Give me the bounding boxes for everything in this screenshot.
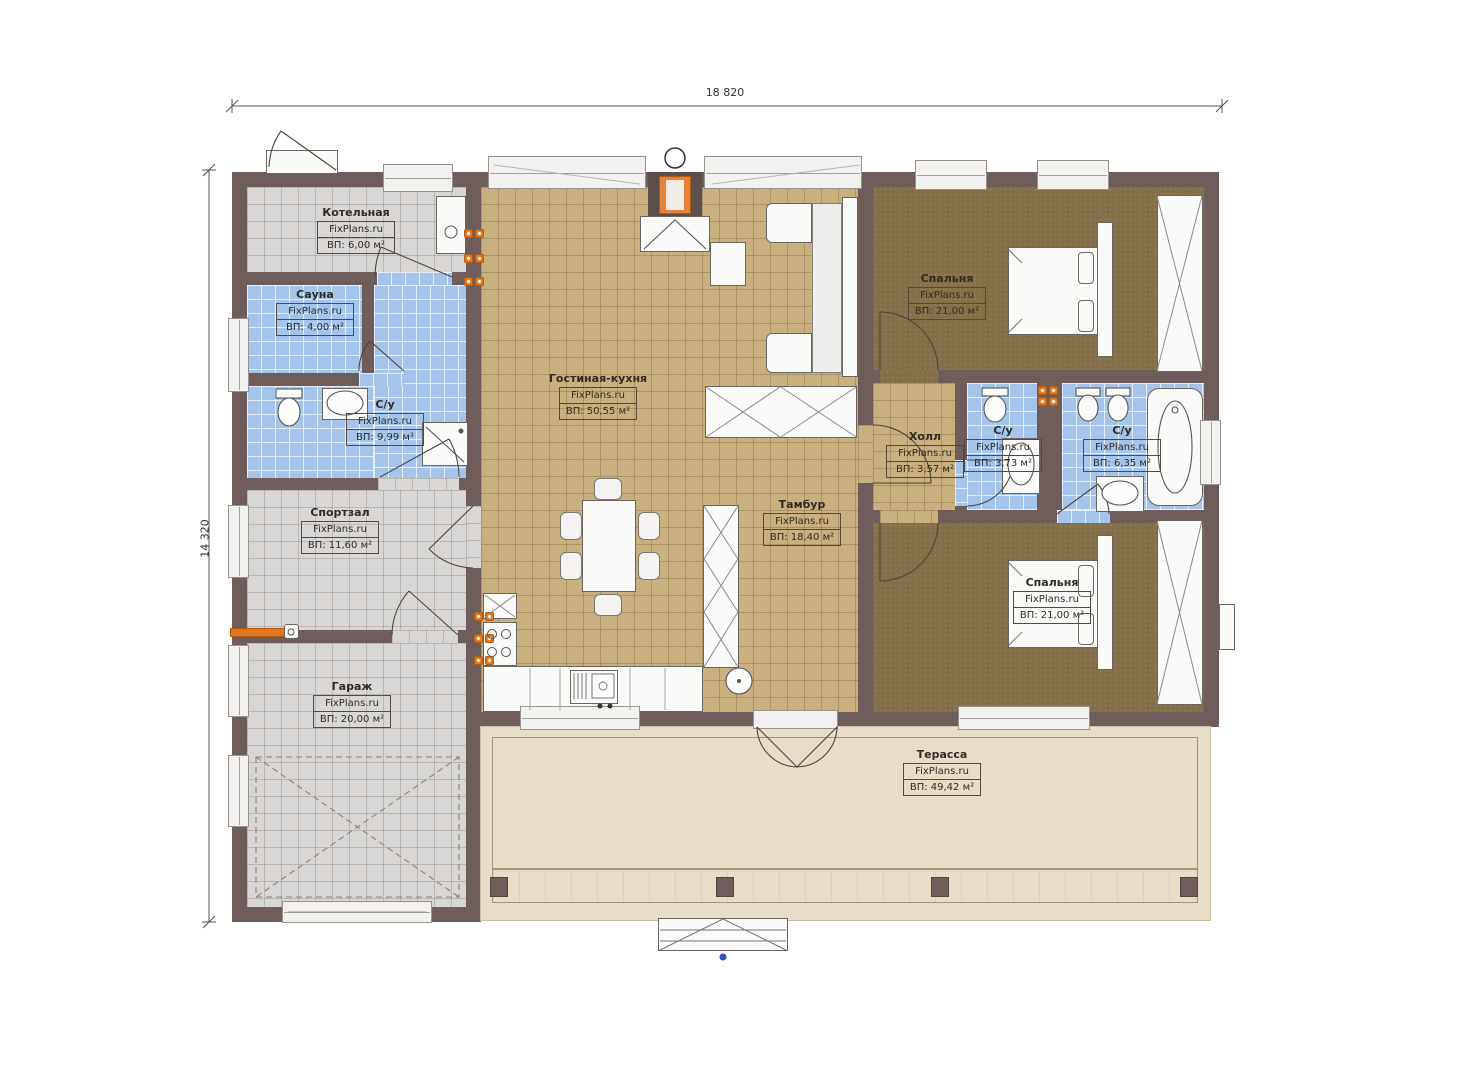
window xyxy=(228,318,249,392)
watermark: FixPlans.ru xyxy=(964,439,1042,456)
window xyxy=(228,505,249,578)
dimension-height-label: 14 320 xyxy=(199,504,212,574)
radiator xyxy=(474,634,494,643)
watermark: FixPlans.ru xyxy=(313,695,391,712)
radiator xyxy=(1038,397,1058,406)
dining-table xyxy=(582,500,636,592)
room-label-holl: Холл FixPlans.ru ВП: 3,57 м² xyxy=(883,430,967,478)
watermark: FixPlans.ru xyxy=(276,303,354,320)
watermark: FixPlans.ru xyxy=(903,763,981,780)
room-name: С/у xyxy=(1083,424,1161,437)
door-gap xyxy=(377,272,452,285)
window xyxy=(520,706,640,730)
terrace-post xyxy=(1180,877,1198,897)
ac-unit-outside xyxy=(1219,604,1235,650)
terrace-stairs xyxy=(658,918,788,951)
room-area: ВП: 21,00 м² xyxy=(908,304,986,320)
dining-chair xyxy=(594,594,622,616)
sofa-seat xyxy=(766,203,812,243)
dining-chair xyxy=(638,512,660,540)
window xyxy=(383,164,453,192)
watermark: FixPlans.ru xyxy=(301,521,379,538)
room-label-garazh: Гараж FixPlans.ru ВП: 20,00 м² xyxy=(292,680,412,728)
radiator xyxy=(1038,386,1058,395)
door-gap xyxy=(392,630,458,643)
window xyxy=(958,706,1090,730)
nightstand-strip-top xyxy=(1097,222,1113,357)
room-name: Спальня xyxy=(997,576,1107,589)
door-gap xyxy=(880,370,938,383)
room-area: ВП: 3,73 м² xyxy=(964,456,1042,472)
room-label-terrassa: Терасса FixPlans.ru ВП: 49,42 м² xyxy=(877,748,1007,796)
sofa-backrest xyxy=(842,197,858,377)
terrace-post xyxy=(931,877,949,897)
room-name: Спортзал xyxy=(280,506,400,519)
terrace-inner-border xyxy=(492,737,1198,869)
floor-living-kitchen xyxy=(481,187,858,712)
window xyxy=(915,160,987,190)
watermark: FixPlans.ru xyxy=(763,513,841,530)
dining-chair xyxy=(594,478,622,500)
watermark: FixPlans.ru xyxy=(1013,591,1091,608)
room-label-spalnya-top: Спальня FixPlans.ru ВП: 21,00 м² xyxy=(892,272,1002,320)
room-label-tambur: Тамбур FixPlans.ru ВП: 18,40 м² xyxy=(742,498,862,546)
room-area: ВП: 20,00 м² xyxy=(313,712,391,728)
sofa-seat xyxy=(766,333,812,373)
room-area: ВП: 3,57 м² xyxy=(886,462,964,478)
room-area: ВП: 9,99 м² xyxy=(346,430,424,446)
window xyxy=(1037,160,1109,190)
boiler-unit xyxy=(436,196,466,254)
room-label-su3: С/у FixPlans.ru ВП: 6,35 м² xyxy=(1083,424,1161,472)
watermark: FixPlans.ru xyxy=(559,387,637,404)
terrace-edge-boards xyxy=(492,869,1198,903)
wardrobe-entry-top xyxy=(705,386,857,438)
window xyxy=(1200,420,1221,485)
pillow xyxy=(1078,300,1094,332)
window xyxy=(488,156,646,189)
radiator xyxy=(474,612,494,621)
room-name: Сауна xyxy=(260,288,370,301)
room-name: Терасса xyxy=(877,748,1007,761)
room-area: ВП: 18,40 м² xyxy=(763,530,841,546)
dining-chair xyxy=(560,512,582,540)
room-label-su2: С/у FixPlans.ru ВП: 3,73 м² xyxy=(964,424,1042,472)
watermark: FixPlans.ru xyxy=(346,413,424,430)
terrace-post xyxy=(490,877,508,897)
terrace-door-opening xyxy=(753,710,838,729)
room-name: Тамбур xyxy=(742,498,862,511)
door-gap xyxy=(359,373,404,386)
room-area: ВП: 49,42 м² xyxy=(903,780,981,796)
pillow xyxy=(1078,252,1094,284)
sink-mat xyxy=(1096,476,1144,512)
kitchen-sink-unit xyxy=(570,670,618,704)
room-area: ВП: 50,55 м² xyxy=(559,404,637,420)
room-name: Котельная xyxy=(296,206,416,219)
door-gap xyxy=(466,506,481,568)
window xyxy=(704,156,862,189)
room-label-sauna: Сауна FixPlans.ru ВП: 4,00 м² xyxy=(260,288,370,336)
room-label-sportzal: Спортзал FixPlans.ru ВП: 11,60 м² xyxy=(280,506,400,554)
dining-chair xyxy=(560,552,582,580)
room-label-gostinaya: Гостиная-кухня FixPlans.ru ВП: 50,55 м² xyxy=(528,372,668,420)
room-area: ВП: 11,60 м² xyxy=(301,538,379,554)
watermark: FixPlans.ru xyxy=(317,221,395,238)
door-gap xyxy=(378,478,459,490)
room-area: ВП: 6,00 м² xyxy=(317,238,395,254)
radiator xyxy=(474,656,494,665)
wardrobe-bedroom-top xyxy=(1157,195,1203,372)
radiator xyxy=(464,277,484,286)
room-name: Гостиная-кухня xyxy=(528,372,668,385)
wardrobe-entry-left xyxy=(703,505,739,668)
floorplan-canvas: 18 820 14 320 xyxy=(0,0,1474,1080)
wardrobe-bedroom-bottom xyxy=(1157,520,1203,705)
door-gap xyxy=(858,425,873,483)
window xyxy=(228,645,249,717)
room-area: ВП: 4,00 м² xyxy=(276,320,354,336)
window xyxy=(228,755,249,827)
coffee-table xyxy=(710,242,746,286)
room-name: Холл xyxy=(883,430,967,443)
room-label-kotelnaya: Котельная FixPlans.ru ВП: 6,00 м² xyxy=(296,206,416,254)
room-name: Гараж xyxy=(292,680,412,693)
valve-knob xyxy=(284,624,299,639)
room-name: С/у xyxy=(330,398,440,411)
garage-gate xyxy=(282,901,432,923)
room-area: ВП: 6,35 м² xyxy=(1083,456,1161,472)
radiator-bar xyxy=(230,628,288,637)
room-area: ВП: 21,00 м² xyxy=(1013,608,1091,624)
dining-chair xyxy=(638,552,660,580)
room-name: С/у xyxy=(964,424,1042,437)
fireplace-firebox-inner xyxy=(666,180,684,210)
room-name: Спальня xyxy=(892,272,1002,285)
sofa-body xyxy=(812,203,842,373)
radiator xyxy=(464,229,484,238)
door-gap xyxy=(880,510,938,523)
dimension-width-label: 18 820 xyxy=(690,86,760,99)
radiator xyxy=(464,254,484,263)
entry-door-panel xyxy=(266,150,338,174)
fireplace-hood xyxy=(640,216,710,252)
watermark: FixPlans.ru xyxy=(886,445,964,462)
terrace-post xyxy=(716,877,734,897)
room-label-spalnya-bottom: Спальня FixPlans.ru ВП: 21,00 м² xyxy=(997,576,1107,624)
watermark: FixPlans.ru xyxy=(908,287,986,304)
watermark: FixPlans.ru xyxy=(1083,439,1161,456)
wall-sauna-bottom xyxy=(247,373,374,386)
room-label-su1: С/у FixPlans.ru ВП: 9,99 м² xyxy=(330,398,440,446)
